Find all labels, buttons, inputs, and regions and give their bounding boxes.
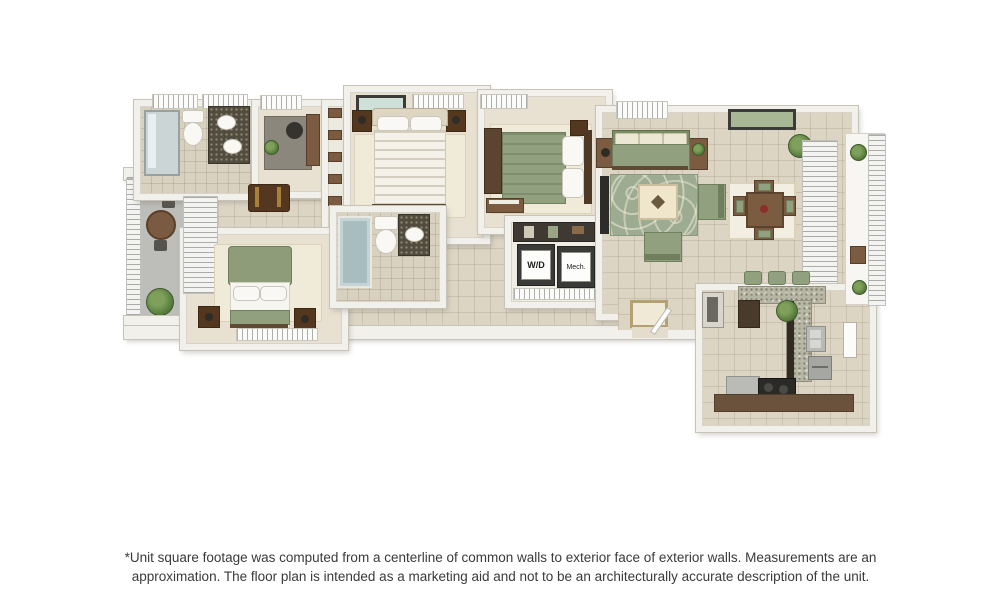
shelf-item-3	[328, 152, 342, 162]
dining-table	[746, 192, 784, 228]
wall-art-living	[728, 109, 796, 130]
disclaimer-line-1: *Unit square footage was computed from a…	[0, 548, 1001, 567]
bed-3-duvet	[502, 132, 566, 204]
front-door-opening	[632, 327, 668, 338]
bar-cabinet	[738, 300, 760, 328]
master-window	[236, 328, 318, 341]
balcony-right-chair	[850, 246, 866, 264]
trunk-strap-2	[277, 187, 281, 207]
louver-doors	[513, 288, 597, 300]
lamp-icon	[301, 315, 309, 323]
side-table-right	[688, 138, 708, 170]
lamp-icon	[205, 313, 213, 321]
vanity-sink-2	[223, 139, 242, 154]
burner-1	[764, 383, 773, 392]
nightstand-b2-right	[446, 110, 466, 132]
bistro-chair-2	[154, 240, 167, 251]
toilet-bowl-1	[183, 122, 203, 146]
nightstand-master-left	[198, 306, 220, 328]
toilet-tank-2	[374, 216, 398, 230]
dresser-top	[489, 200, 519, 204]
floor-plan: W/D Mech.	[0, 0, 1001, 600]
master-headboard	[228, 246, 292, 286]
coffee-table-inlay	[651, 195, 665, 209]
balcony-right-plant-2-icon	[852, 280, 867, 295]
lamp-icon	[601, 148, 610, 157]
bathtub	[338, 216, 372, 288]
centerpiece	[760, 205, 768, 213]
dining-chair-left	[733, 196, 746, 216]
double-vanity	[208, 106, 250, 164]
vanity-2	[398, 214, 430, 256]
bottom-cabinets	[714, 394, 854, 412]
master-pillow-1	[233, 286, 260, 301]
master-throw-blanket	[230, 310, 290, 325]
trunk-strap-1	[255, 187, 259, 207]
washer-dryer-unit: W/D	[517, 244, 555, 286]
armchair-right	[698, 184, 726, 220]
ceiling-vent	[616, 101, 668, 119]
balcony-plant-icon	[146, 288, 174, 316]
nightstand-b2-left	[352, 110, 372, 132]
bedroom-3-window	[480, 94, 528, 109]
master-pillow-2	[260, 286, 287, 301]
balcony-right-plant-1-icon	[850, 144, 867, 161]
fridge-handle	[812, 366, 828, 368]
bed-3-pillow-2	[562, 168, 584, 198]
sofa-front-rail	[612, 166, 688, 170]
kitchen-window	[843, 322, 857, 358]
pantry	[702, 292, 724, 328]
plant-icon	[692, 143, 705, 156]
dining-chair-bottom	[754, 227, 774, 240]
armchair-back	[718, 185, 724, 218]
toilet-bowl-2	[375, 229, 397, 254]
chair-pad	[758, 230, 771, 238]
pantry-door	[707, 297, 718, 322]
armchair-back	[645, 254, 680, 260]
bar-stool-3	[792, 271, 810, 285]
mechanical-unit: Mech.	[557, 246, 595, 288]
chair-pad	[786, 200, 794, 213]
shelf-item-5	[328, 196, 342, 206]
armchair-bottom	[644, 232, 682, 262]
washer-dryer-label: W/D	[521, 250, 551, 280]
den-plant-icon	[264, 140, 279, 155]
shower	[144, 110, 180, 176]
master-blinds-door	[183, 196, 218, 294]
bistro-table	[146, 210, 176, 240]
den-window	[260, 95, 302, 110]
coffee-table	[638, 184, 678, 220]
tv-console	[600, 176, 609, 234]
disclaimer: *Unit square footage was computed from a…	[0, 548, 1001, 586]
shower-pan	[148, 114, 156, 168]
living-blinds-right	[802, 140, 838, 290]
shelf-item-4	[328, 174, 342, 184]
wardrobe	[484, 128, 502, 194]
sink-bowl-2	[810, 340, 821, 348]
coat-closet-rod	[513, 222, 595, 242]
shelf-item-2	[328, 130, 342, 140]
vanity-2-sink	[405, 227, 424, 242]
disclaimer-line-2: approximation. The floor plan is intende…	[0, 567, 1001, 586]
hanging-clothes-2	[548, 226, 558, 238]
counter-plant-icon	[776, 300, 798, 322]
vanity-sink-1	[217, 115, 236, 130]
bed-3-pillow-1	[562, 136, 584, 166]
lamp-icon	[452, 116, 460, 124]
dining-chair-top	[754, 180, 774, 193]
refrigerator	[808, 356, 832, 380]
chair-pad	[736, 200, 744, 213]
bed-2-duvet	[374, 130, 446, 208]
dining-chair-right	[783, 196, 796, 216]
dresser-b3	[486, 198, 524, 213]
bar-stool-1	[744, 271, 762, 285]
bed-3-headboard	[584, 130, 592, 204]
mechanical-label: Mech.	[561, 252, 591, 282]
floor-plan-page: W/D Mech.	[0, 0, 1001, 600]
kitchen-sink	[806, 326, 826, 352]
burner-2	[779, 385, 788, 394]
desk	[306, 114, 320, 166]
closet-shelf-item	[572, 226, 584, 234]
nightstand-master-right	[294, 308, 316, 330]
lamp-icon	[358, 116, 366, 124]
storage-trunk	[248, 184, 290, 212]
balcony-right-railing	[868, 134, 886, 306]
bathroom-window-1	[152, 94, 198, 109]
office-chair	[286, 122, 303, 139]
counter-gray	[726, 376, 760, 396]
hanging-clothes-1	[524, 226, 534, 238]
bedroom-2-window	[412, 94, 464, 109]
bar-stool-2	[768, 271, 786, 285]
shelf-item-1	[328, 108, 342, 118]
sink-bowl	[810, 330, 821, 338]
chair-pad	[758, 183, 771, 191]
